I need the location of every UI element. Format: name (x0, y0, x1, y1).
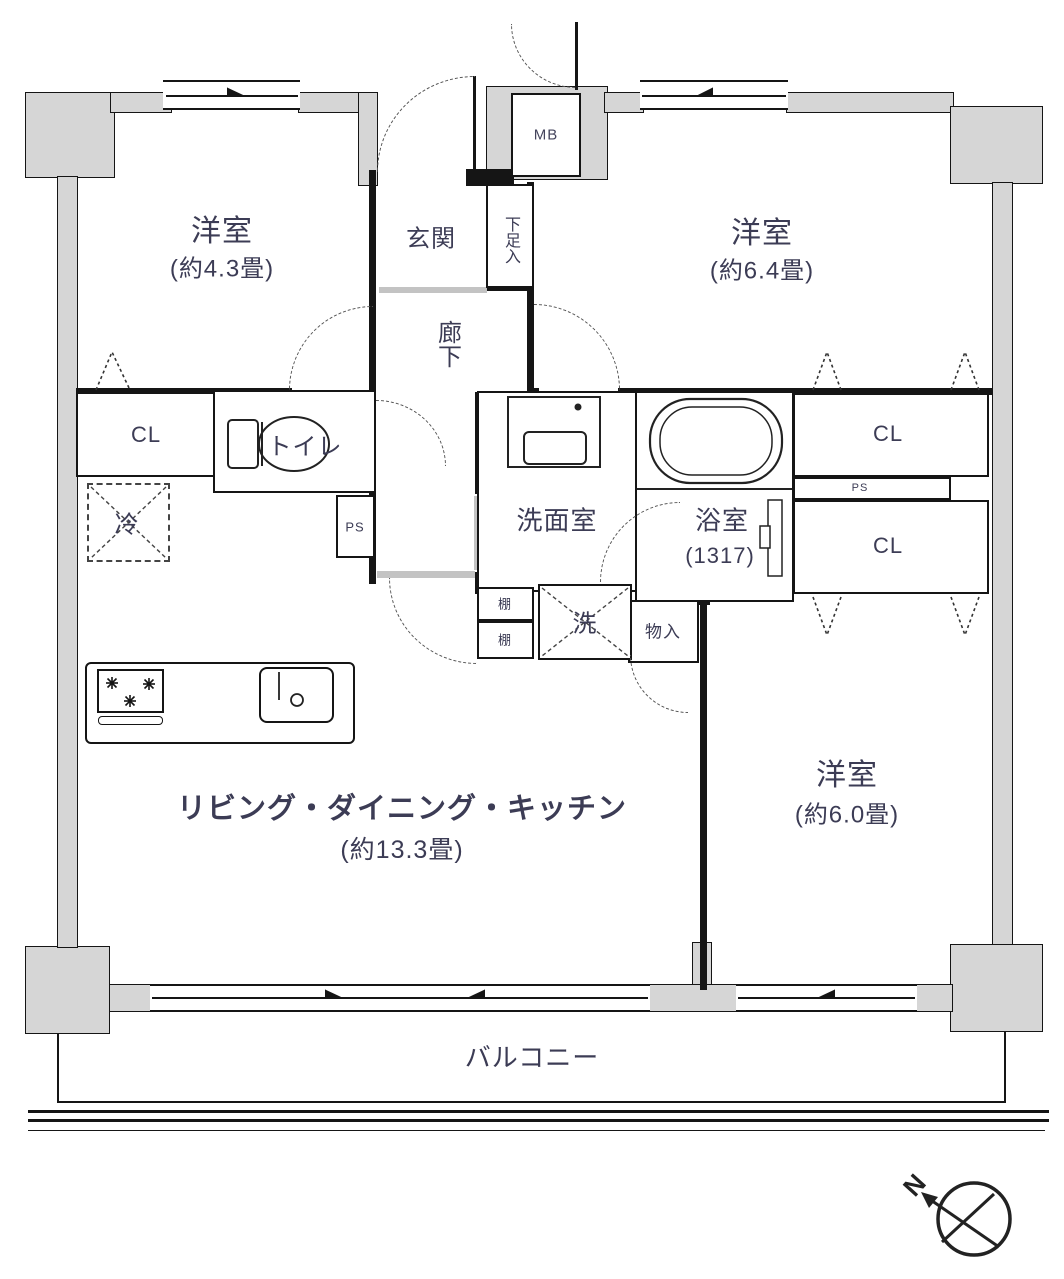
entrance-step (379, 287, 487, 293)
meterbox-door-arc (511, 24, 576, 88)
shelf-label: 棚 (498, 594, 512, 613)
refrigerator-label: 冷 (115, 505, 140, 540)
bathroom-size: (1317) (685, 543, 755, 569)
window-room3-balcony (736, 984, 917, 1012)
floor-plan: 洋室 (約4.3畳) 洋室 (約6.4畳) 玄関 下足入 MB 廊下 CL トイ… (0, 0, 1064, 1279)
pillar-top-right (950, 106, 1043, 184)
wall-top (786, 92, 954, 113)
wall-top (604, 92, 644, 113)
room1-name: 洋室 (191, 206, 253, 250)
pillar-bottom-left (25, 946, 110, 1034)
window-room2 (640, 80, 788, 110)
window-ldk-balcony (150, 984, 650, 1012)
wall-room3-left (700, 598, 707, 990)
closet-right-top-label: CL (873, 421, 903, 447)
window-room1 (163, 80, 300, 110)
ldk-name: リビング・ダイニング・キッチン (177, 785, 627, 827)
toilet-door-arc (376, 400, 446, 466)
balcony-label: バルコニー (465, 1038, 599, 1075)
pipe-space-thin-box (793, 477, 951, 500)
pipe-space-label: PS (345, 520, 364, 535)
entrance-door-arc (377, 76, 475, 172)
corridor-label: 廊下 (430, 320, 465, 368)
compass-icon (921, 1183, 1010, 1255)
north-label: N (897, 1167, 933, 1202)
pipe-space-thin-label: PS (852, 482, 869, 494)
room2-name: 洋室 (731, 208, 793, 252)
closet-left-label: CL (131, 422, 161, 448)
room3-size: (約6.0畳) (795, 795, 899, 830)
washing-machine-label: 洗 (573, 604, 598, 639)
ldk-size: (約13.3畳) (340, 830, 463, 866)
wall-top (298, 92, 366, 113)
room2-door-arc (534, 304, 620, 390)
bathroom-label: 浴室 (695, 501, 749, 538)
storage-door-arc (630, 655, 688, 713)
room3-name: 洋室 (816, 750, 878, 794)
room1-size: (約4.3畳) (170, 249, 274, 284)
shoe-cabinet-label: 下足入 (498, 216, 522, 264)
ldk-entry-sill (377, 571, 475, 578)
stove-grill-bar (98, 716, 163, 725)
meter-box-label: MB (534, 127, 559, 144)
wall-right (992, 182, 1013, 946)
wall-bottom (108, 984, 156, 1012)
washroom-label: 洗面室 (516, 501, 597, 538)
balcony-railing-line (28, 1110, 1049, 1113)
shelf-label: 棚 (498, 630, 512, 649)
wall-left (57, 176, 78, 948)
kitchen-sink (259, 667, 334, 723)
room1-door-arc (289, 306, 373, 390)
ldk-door-arc (389, 578, 477, 664)
stove-box (97, 669, 164, 713)
pillar-top-left (25, 92, 115, 178)
balcony-railing-line (28, 1119, 1049, 1122)
entrance-label: 玄関 (406, 219, 456, 254)
balcony-railing-line (28, 1130, 1045, 1131)
pillar-bottom-right (950, 944, 1043, 1032)
closet-right-bottom-label: CL (873, 533, 903, 559)
wall-bottom (913, 984, 953, 1012)
storage-label: 物入 (645, 618, 681, 643)
room2-size: (約6.4畳) (710, 251, 814, 286)
toilet-label: トイレ (268, 427, 343, 462)
wall-bottom (646, 984, 742, 1012)
